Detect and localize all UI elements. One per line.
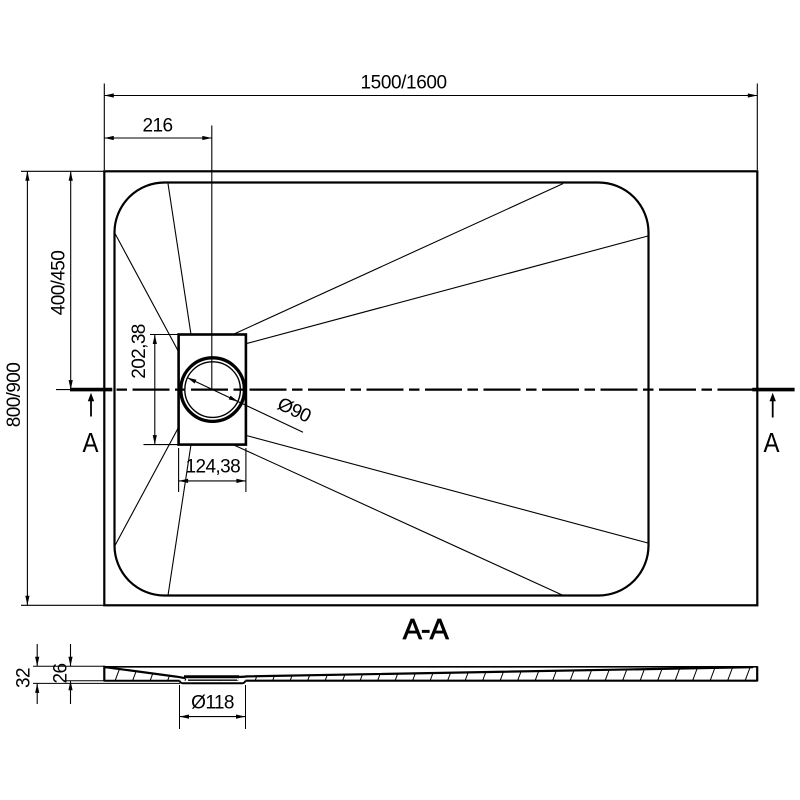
svg-text:32: 32: [14, 668, 35, 688]
svg-text:Ø118: Ø118: [191, 693, 234, 714]
svg-text:800/900: 800/900: [4, 363, 25, 428]
svg-text:26: 26: [51, 664, 72, 684]
svg-text:202,38: 202,38: [129, 324, 150, 379]
svg-text:216: 216: [143, 116, 173, 137]
svg-text:400/450: 400/450: [49, 251, 70, 316]
svg-text:A: A: [83, 427, 99, 458]
svg-text:1500/1600: 1500/1600: [360, 73, 446, 94]
svg-text:A: A: [764, 427, 780, 458]
svg-text:124,38: 124,38: [186, 457, 241, 478]
svg-text:A-A: A-A: [403, 614, 449, 646]
